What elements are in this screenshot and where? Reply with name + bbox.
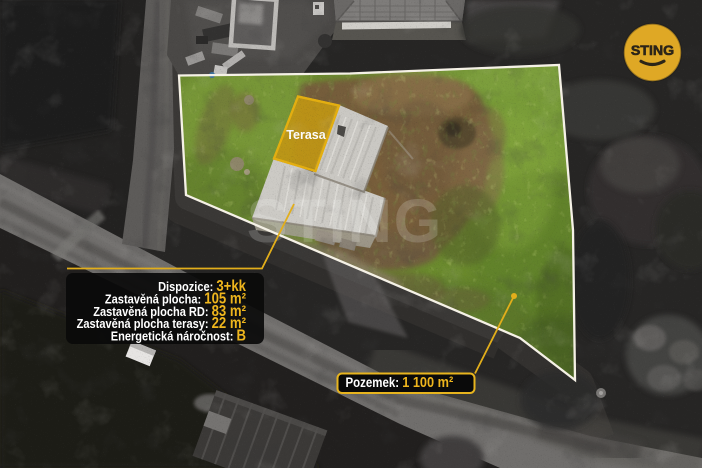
svg-text:STING: STING (631, 43, 674, 59)
svg-text:STING: STING (247, 187, 443, 255)
svg-text:Pozemek: 1 100 m²: Pozemek: 1 100 m² (346, 373, 454, 390)
svg-text:Energetická náročnost: B: Energetická náročnost: B (111, 328, 246, 345)
